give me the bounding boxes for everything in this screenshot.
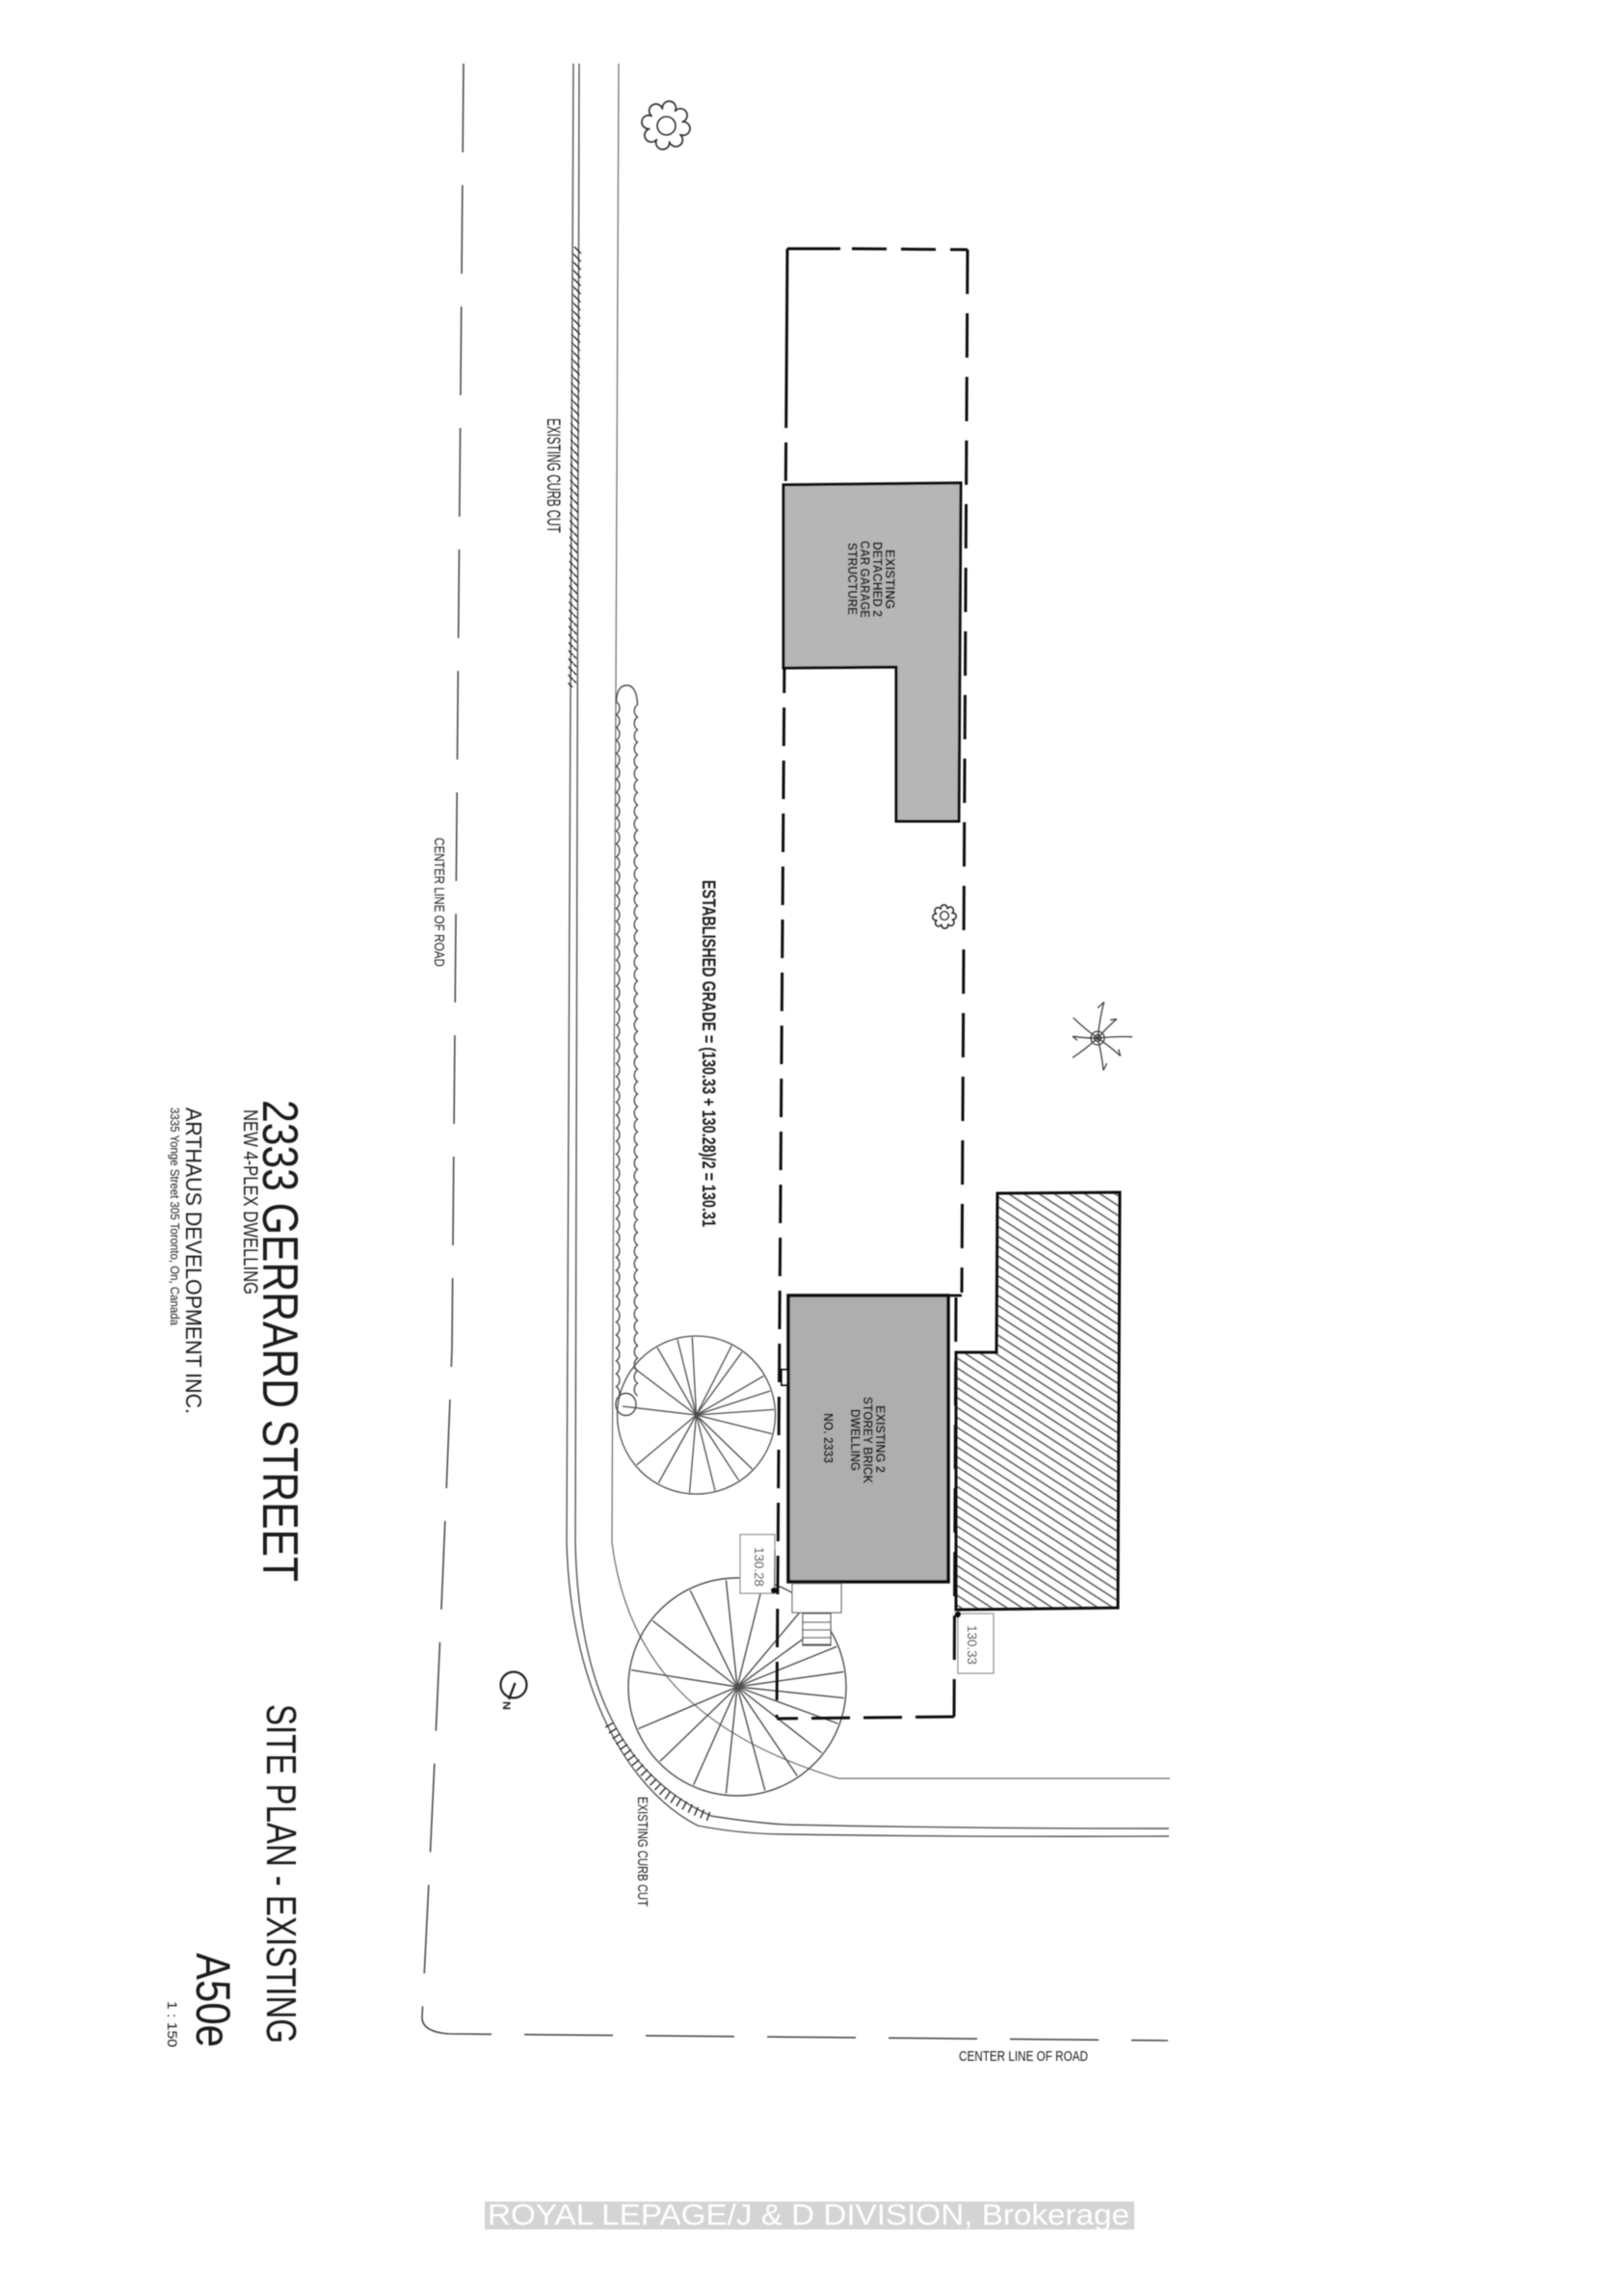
svg-text:EXISTING CURB CUT: EXISTING CURB CUT bbox=[634, 1797, 650, 1907]
svg-text:130.33: 130.33 bbox=[965, 1625, 979, 1665]
svg-text:A50e: A50e bbox=[186, 1953, 240, 2047]
svg-text:EXISTING CURB CUT: EXISTING CURB CUT bbox=[543, 418, 563, 533]
svg-text:3335 Yonge Street 305 Toronto,: 3335 Yonge Street 305 Toronto, On, Canad… bbox=[168, 1108, 182, 1326]
svg-text:NEW 4-PLEX DWELLING: NEW 4-PLEX DWELLING bbox=[239, 1109, 261, 1295]
svg-text:ESTABLISHED GRADE = (130.33 +: ESTABLISHED GRADE = (130.33 + 130.28)/2 … bbox=[698, 880, 718, 1227]
svg-text:SITE PLAN - EXISTING: SITE PLAN - EXISTING bbox=[257, 1704, 305, 2043]
svg-text:CENTER LINE OF ROAD: CENTER LINE OF ROAD bbox=[431, 838, 447, 967]
svg-text:DWELLING: DWELLING bbox=[848, 1409, 863, 1471]
svg-text:N: N bbox=[500, 1701, 512, 1710]
svg-text:ROYAL LEPAGE/J & D DIVISION, B: ROYAL LEPAGE/J & D DIVISION, Brokerage bbox=[488, 2198, 1129, 2231]
svg-text:130.28: 130.28 bbox=[752, 1547, 766, 1587]
svg-text:ARTHAUS DEVELOPMENT INC.: ARTHAUS DEVELOPMENT INC. bbox=[181, 1108, 206, 1414]
svg-text:1 : 150: 1 : 150 bbox=[165, 2001, 180, 2047]
svg-text:NO. 2333: NO. 2333 bbox=[821, 1413, 836, 1463]
svg-text:STRUCTURE: STRUCTURE bbox=[845, 543, 860, 615]
svg-text:CENTER LINE OF ROAD: CENTER LINE OF ROAD bbox=[959, 2048, 1088, 2065]
